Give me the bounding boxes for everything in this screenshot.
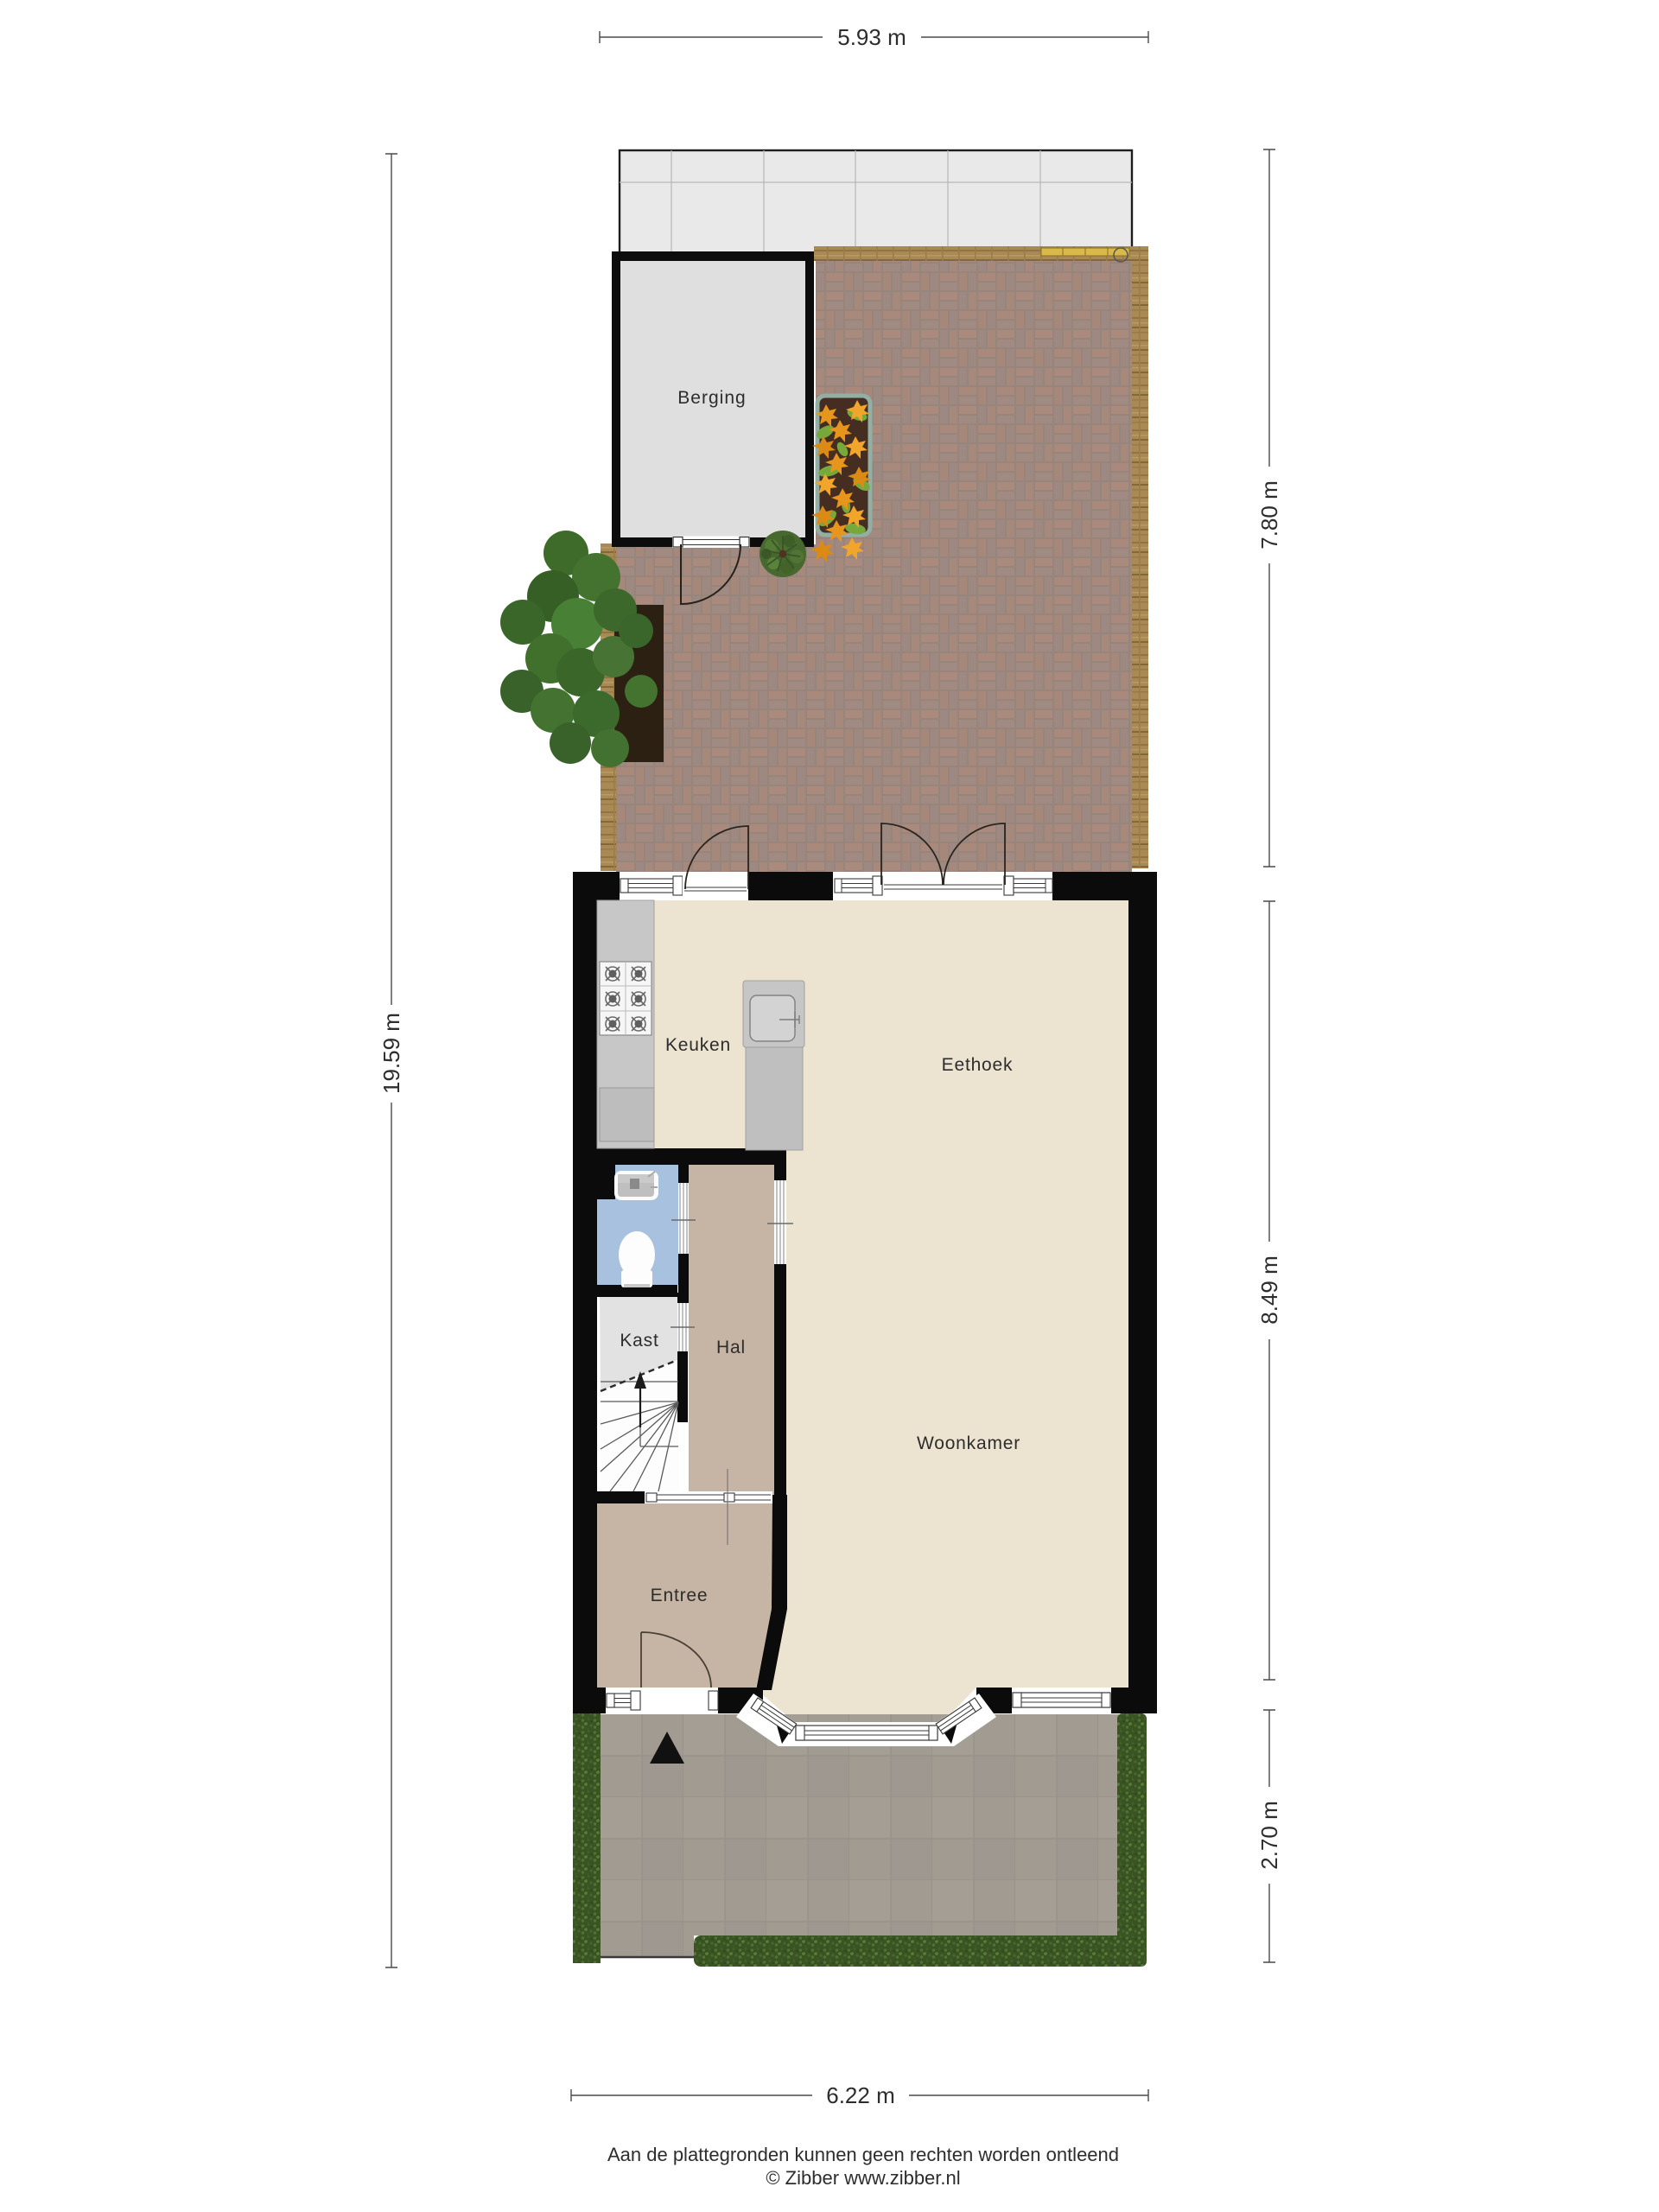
svg-text:Woonkamer: Woonkamer [917, 1433, 1020, 1453]
svg-text:Entree: Entree [651, 1586, 709, 1605]
svg-text:© Zibber www.zibber.nl: © Zibber www.zibber.nl [766, 2167, 960, 2189]
svg-text:2.70 m: 2.70 m [1256, 1801, 1282, 1870]
svg-text:Eethoek: Eethoek [942, 1055, 1014, 1075]
svg-text:5.93 m: 5.93 m [837, 24, 906, 50]
svg-text:Kast: Kast [620, 1331, 658, 1351]
svg-text:Aan de plattegronden kunnen ge: Aan de plattegronden kunnen geen rechten… [607, 2144, 1119, 2165]
svg-text:Keuken: Keuken [665, 1035, 731, 1055]
svg-text:Hal: Hal [716, 1338, 746, 1357]
svg-text:Berging: Berging [677, 388, 746, 408]
svg-text:19.59 m: 19.59 m [378, 1013, 404, 1094]
svg-text:8.49 m: 8.49 m [1256, 1255, 1282, 1325]
svg-text:7.80 m: 7.80 m [1256, 480, 1282, 550]
svg-text:6.22 m: 6.22 m [826, 2082, 895, 2108]
